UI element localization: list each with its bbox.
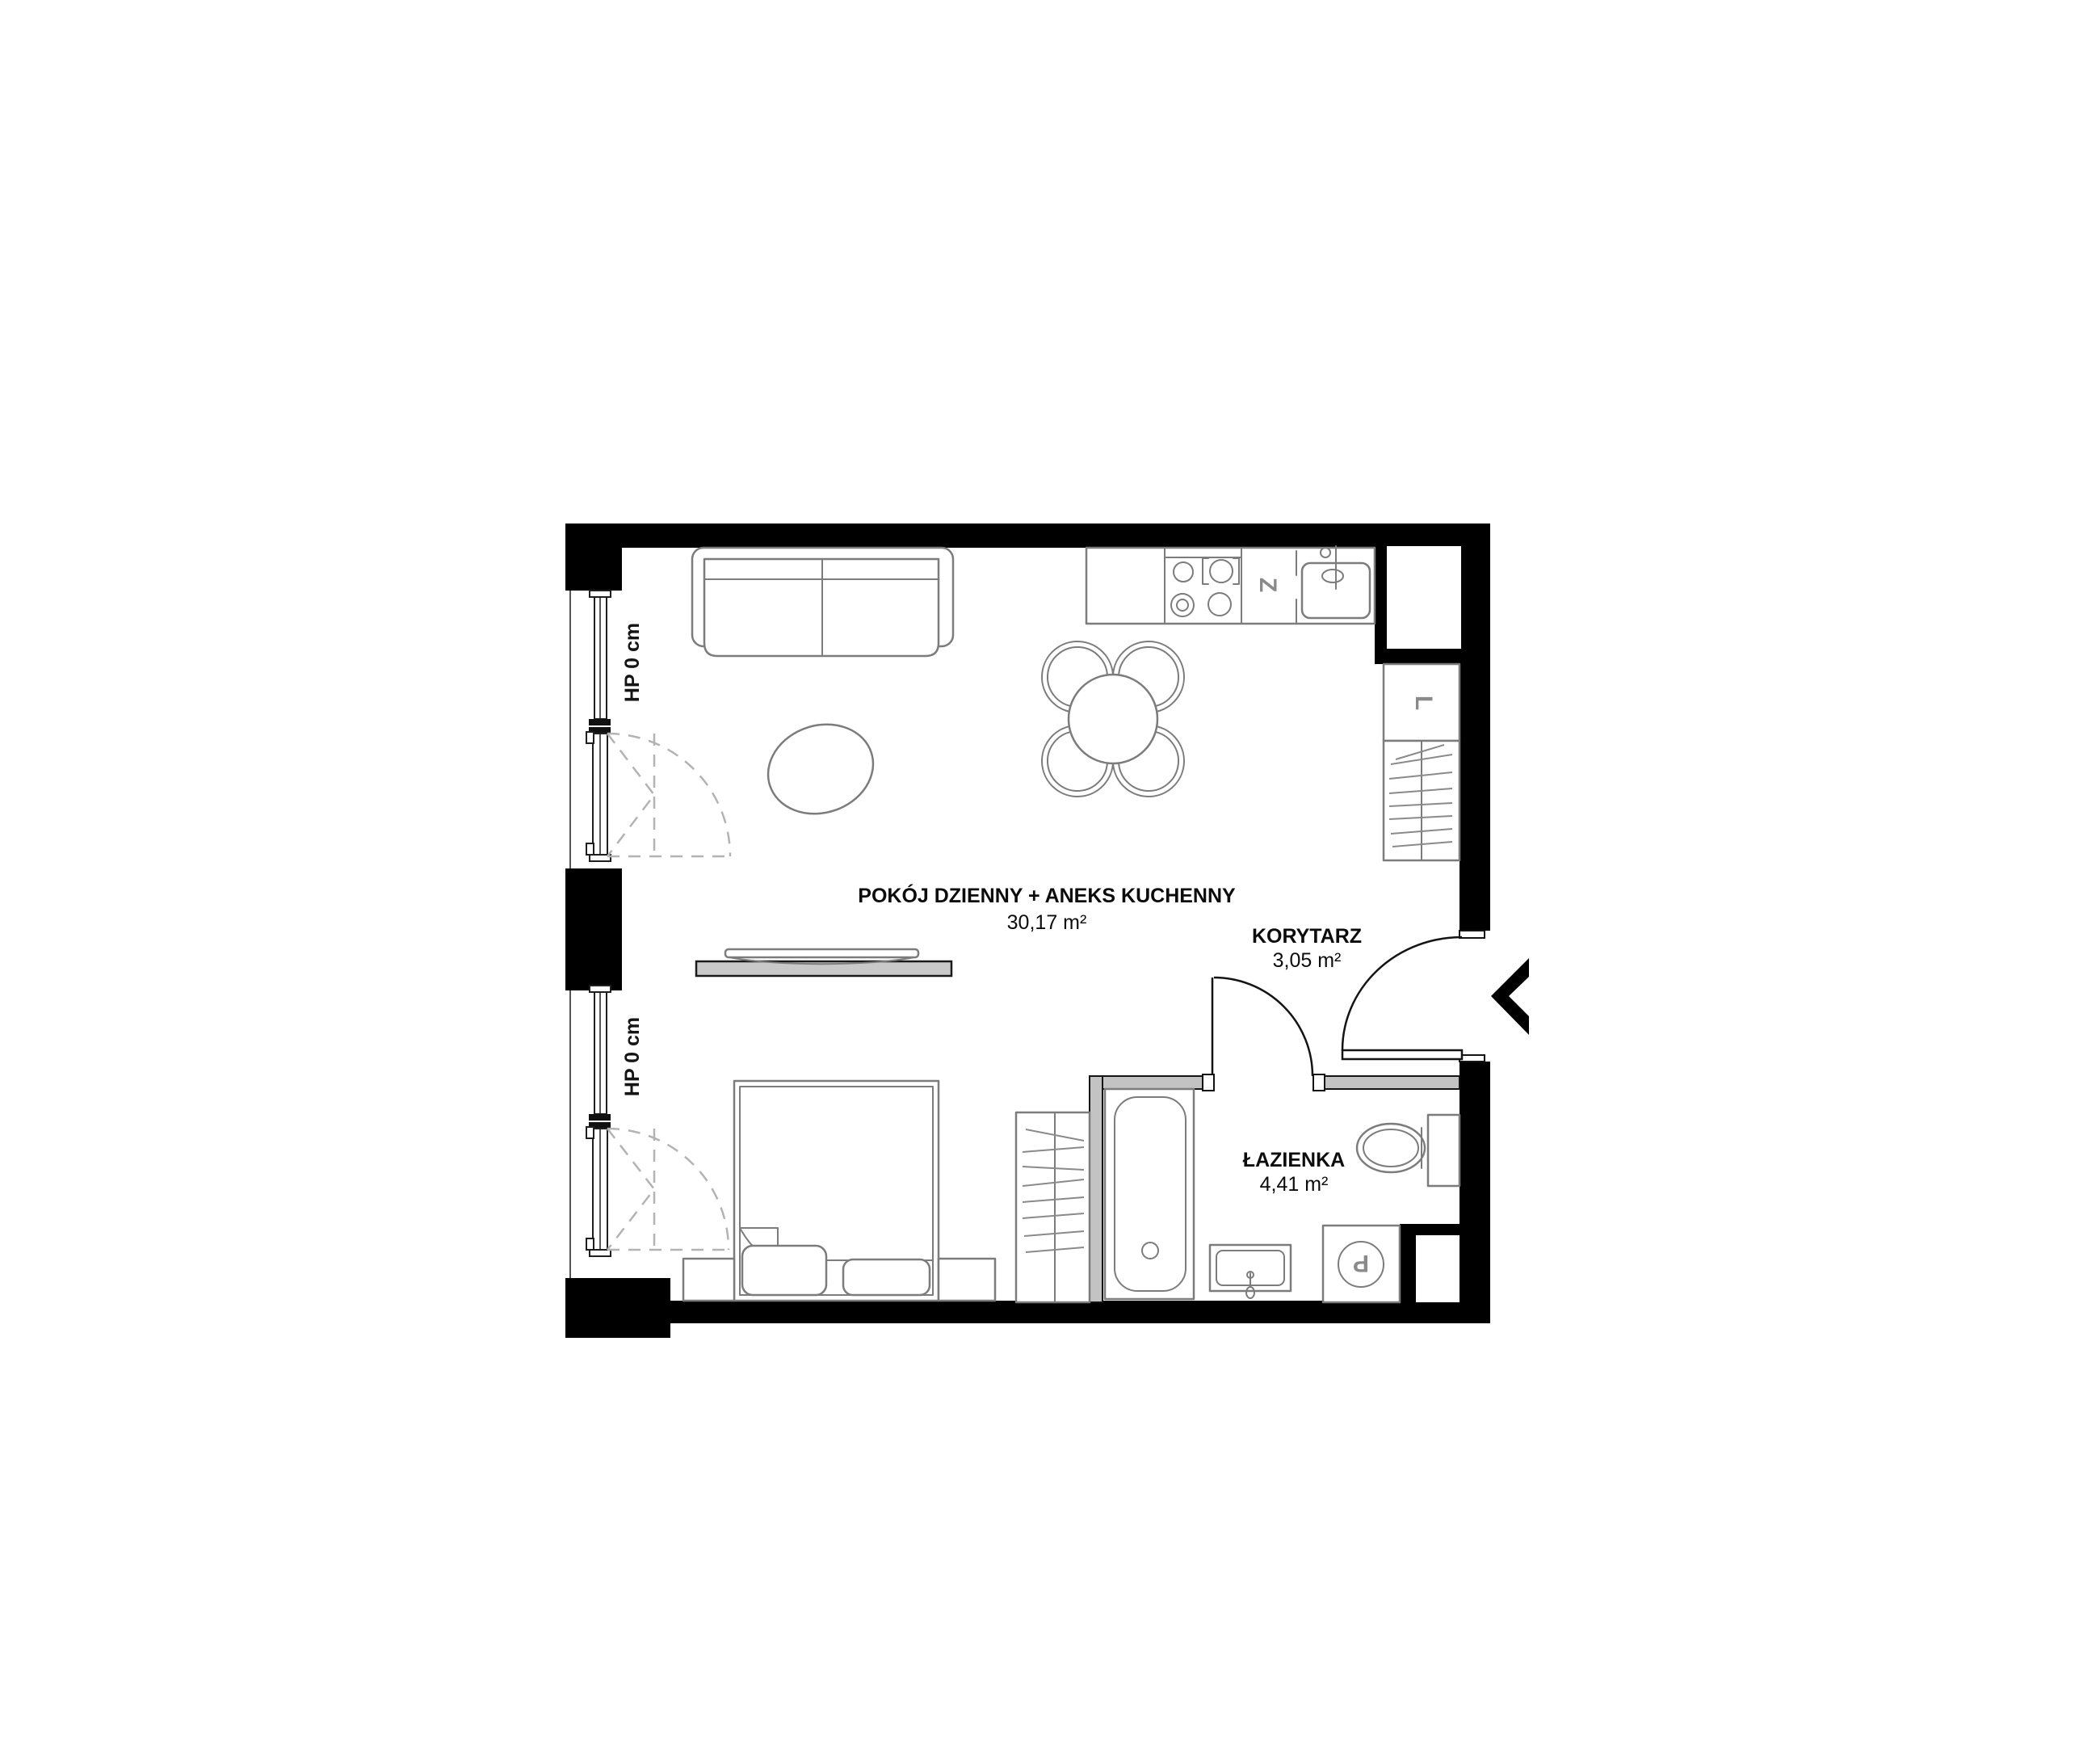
bedroom-wardrobe bbox=[1016, 1112, 1090, 1302]
window-transom bbox=[589, 719, 611, 725]
window-height-label: HP 0 cm bbox=[621, 1017, 644, 1096]
entrance-door bbox=[1342, 931, 1529, 1062]
bathroom-door bbox=[1212, 978, 1312, 1076]
toilet-bowl bbox=[1357, 1124, 1425, 1172]
bathtub bbox=[1105, 1089, 1194, 1299]
room-area-living: 30,17 m² bbox=[1007, 911, 1087, 934]
door-frame bbox=[1459, 1055, 1485, 1062]
entrance-arrow-icon bbox=[1491, 958, 1529, 1035]
room-name-bathroom: ŁAZIENKA bbox=[1243, 1149, 1345, 1171]
window-sill-tick bbox=[590, 986, 611, 992]
floorplan-canvas: HP 0 cm HP 0 cm bbox=[0, 0, 2100, 1745]
pillow bbox=[742, 1246, 826, 1295]
window-lower: HP 0 cm bbox=[586, 986, 729, 1256]
door-leaf bbox=[1342, 1050, 1462, 1059]
balcony-door-handle bbox=[586, 1127, 594, 1138]
partition-wall bbox=[1102, 1076, 1203, 1089]
wall-segment bbox=[670, 1301, 1490, 1323]
nightstand-right bbox=[939, 1259, 995, 1301]
window-transom bbox=[589, 1114, 611, 1121]
kitchen: Z bbox=[1086, 546, 1375, 624]
room-area-corridor: 3,05 m² bbox=[1273, 949, 1342, 972]
dishwasher-mark: Z bbox=[1254, 578, 1281, 592]
shaft-niche-bottom bbox=[1416, 1235, 1459, 1302]
dining-table bbox=[1069, 675, 1157, 763]
partition-wall bbox=[1090, 1076, 1102, 1302]
nightstand-left bbox=[683, 1259, 734, 1301]
window-height-label: HP 0 cm bbox=[621, 623, 644, 702]
window-sill-tick bbox=[590, 591, 611, 597]
door-frame bbox=[1203, 1074, 1214, 1091]
tv bbox=[725, 949, 918, 957]
window-swing-arc bbox=[607, 734, 730, 856]
window-swing-arc bbox=[607, 1129, 729, 1250]
tv-sideboard bbox=[696, 949, 951, 976]
room-area-bathroom: 4,41 m² bbox=[1260, 1173, 1329, 1196]
wardrobe-outline bbox=[1016, 1112, 1090, 1302]
hall-cabinets: L bbox=[1384, 664, 1459, 860]
bed bbox=[734, 1081, 939, 1301]
wall-segment bbox=[565, 1278, 670, 1338]
wall-segment bbox=[1459, 523, 1490, 931]
washing-machine-mark: P bbox=[1353, 1250, 1369, 1276]
wall-segment bbox=[565, 868, 622, 990]
balcony-door-handle bbox=[586, 732, 594, 743]
wall-segment bbox=[622, 523, 1490, 548]
wall-segment bbox=[565, 523, 622, 591]
floorplan-svg: HP 0 cm HP 0 cm bbox=[0, 0, 2100, 1745]
sofa bbox=[692, 548, 953, 656]
dining-set bbox=[1027, 627, 1199, 811]
door-frame bbox=[1313, 1074, 1325, 1091]
pillow bbox=[843, 1259, 930, 1295]
shaft-niche-top bbox=[1387, 546, 1461, 649]
partition-wall bbox=[1325, 1076, 1459, 1089]
room-name-living: POKÓJ DZIENNY + ANEKS KUCHENNY bbox=[858, 883, 1236, 907]
window-opening-triangle bbox=[607, 1129, 654, 1250]
door-frame bbox=[1459, 931, 1485, 938]
room-name-corridor: KORYTARZ bbox=[1252, 925, 1362, 948]
toilet-cistern bbox=[1428, 1115, 1459, 1186]
balcony-door-handle bbox=[586, 843, 594, 855]
door-swing-arc bbox=[1214, 978, 1312, 1076]
balcony-door-handle bbox=[586, 1238, 594, 1250]
window-opening-triangle bbox=[607, 734, 654, 856]
door-swing-arc bbox=[1342, 937, 1462, 1050]
pouf bbox=[757, 711, 885, 827]
fridge-mark: L bbox=[1410, 696, 1437, 710]
